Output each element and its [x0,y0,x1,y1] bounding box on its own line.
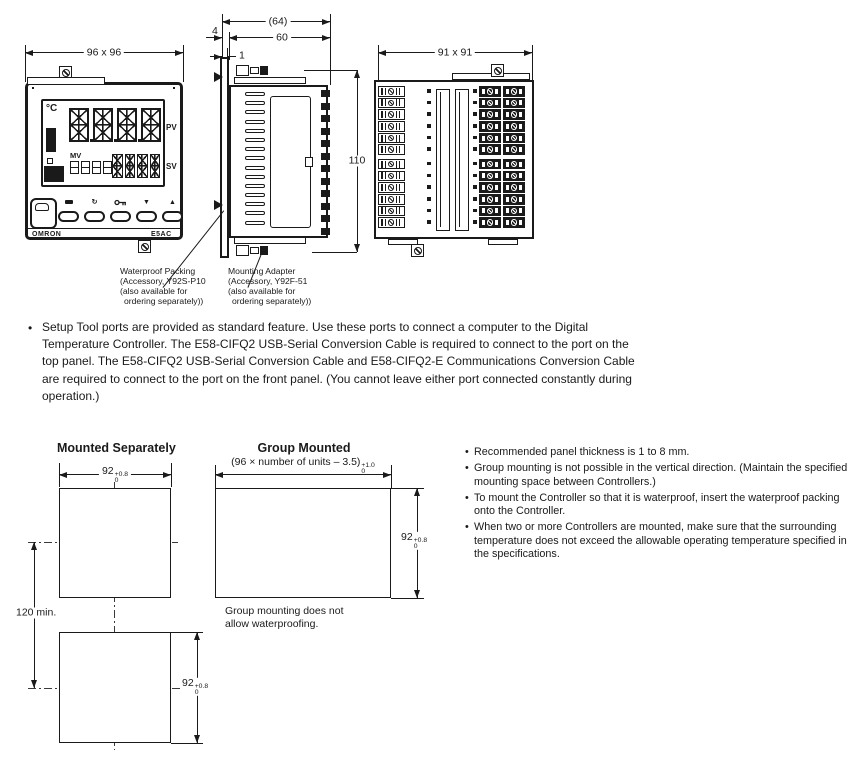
tolerance-lower: 0 [115,478,128,484]
vent-slot-column [245,92,265,230]
terminal-cell [503,86,525,97]
arrowhead [194,735,200,743]
terminal-tooth [321,228,330,235]
terminal-cell [479,194,501,205]
body-depth-dimension: 60 [273,32,291,43]
terminal-cell [378,98,405,109]
callout-line: (also available for [120,286,206,296]
temperature-unit-indicator: °C [46,103,57,114]
terminal-cell [503,182,525,193]
vent-slot [245,221,265,225]
terminal-cell [479,133,501,144]
mounted-separately-title: Mounted Separately [57,441,173,455]
clamp-screw-head [236,245,249,256]
group-cutout-height-dimension: 92+0.80 [399,532,429,550]
terminal-cell [503,133,525,144]
vent-slot [245,92,265,96]
cutout-square-lower [59,632,171,743]
bezel-divider-line [28,228,180,229]
terminal-cell [378,182,405,193]
terminal-dot-column [473,89,477,232]
status-indicator-block [46,128,56,152]
front-key-button [162,211,183,222]
terminal-cell [378,159,405,170]
indicator-block [44,166,64,182]
waterproof-packing-section [214,200,223,210]
mv-digit [103,161,112,174]
terminal-cell [378,171,405,182]
arrowhead [414,590,420,598]
callout-line: (also available for [228,286,311,296]
rear-size-dimension: 91 x 91 [435,47,475,58]
dimension-line [215,474,391,475]
list-item: • Recommended panel thickness is 1 to 8 … [465,446,849,459]
sv-label: SV [165,162,178,171]
extension-line [183,45,184,82]
sv-digit-display [112,154,162,178]
terminal-cell [503,121,525,132]
terminal-cell [503,109,525,120]
terminal-dot [473,101,477,105]
mounting-pitch-dimension: 120 min. [14,608,58,619]
extension-line [330,14,331,85]
terminal-cell [503,159,525,170]
terminal-dot [473,162,477,166]
vent-slot [245,156,265,160]
dimension-value: 92 [401,531,413,543]
terminal-cell [378,206,405,217]
mv-digit [70,161,79,174]
terminal-dot [473,89,477,93]
front-key-button [136,211,157,222]
terminal-cell [378,109,405,120]
sv-digit [150,154,161,178]
terminal-block-column-right [479,86,501,229]
sv-digit [125,154,136,178]
bullet-marker: • [28,321,32,335]
arrowhead [31,680,37,688]
callout-line: (Accessory, Y92F-51 [228,276,311,286]
pv-digit [141,108,161,142]
arrowhead [215,472,223,478]
group-mounted-title: Group Mounted [245,441,363,455]
terminal-cell [503,171,525,182]
terminal-cell [378,217,405,228]
top-mounting-clamp [234,77,306,84]
terminal-cell [378,144,405,155]
arrowhead [524,50,532,56]
formula-text: (96 × number of units – 3.5) [231,456,360,468]
terminal-cell [503,144,525,155]
terminal-dot [427,147,431,151]
terminal-dot [427,112,431,116]
arrowhead [383,472,391,478]
terminal-dot [427,162,431,166]
terminal-dot [473,124,477,128]
arrowhead [194,632,200,640]
terminal-dot-column [427,89,431,232]
terminal-tooth [321,178,330,185]
datasheet-dimensions-page: 96 x 96 °C PV MV SV ↻▼▲ OMRON E5AC (6 [0,0,854,772]
mounting-screw-icon [411,244,424,257]
brand-logo: OMRON [32,231,61,238]
terminal-tooth [321,153,330,160]
extension-line [171,463,172,487]
mode-icon: ↻ [84,198,105,207]
terminal-dot [473,209,477,213]
vent-slot [245,101,265,105]
arrowhead [378,50,386,56]
front-bezel-profile [220,57,229,258]
vent-slot [245,166,265,170]
terminal-tooth [321,190,330,197]
pv-digit [69,108,89,142]
list-item: • When two or more Controllers are mount… [465,521,849,561]
extension-line [391,465,392,488]
callout-line: ordering separately)) [228,296,311,306]
pv-label: PV [165,123,178,132]
terminal-dot [427,89,431,93]
cutout-width-dimension: 92+0.80 [99,465,131,483]
pv-digit [93,108,113,142]
vent-slot [245,175,265,179]
dimension-value: 92 [182,677,194,689]
slot-inner-line [459,92,460,227]
note-text: Group mounting is not possible in the ve… [474,462,849,489]
terminal-cell [479,182,501,193]
shift-key-icon [110,198,131,210]
terminal-cell [479,121,501,132]
vent-slot [245,129,265,133]
arrowhead [175,50,183,56]
note-line: allow waterproofing. [225,618,344,631]
terminal-cell [479,171,501,182]
decimal-point-icon [90,139,93,142]
terminal-tooth [321,203,330,210]
indicator-square [47,158,53,164]
bullet-marker: • [465,462,474,489]
rear-view-drawing: 91 x 91 [372,40,542,265]
terminal-tooth [321,215,330,222]
terminal-cell [378,86,405,97]
terminal-tooth [321,140,330,147]
terminal-cell [378,194,405,205]
terminal-cell [479,217,501,228]
terminal-dot [427,174,431,178]
mounting-screw-icon [491,64,504,77]
arrowhead [354,244,360,252]
connector-slot [436,89,450,231]
vent-slot [245,147,265,151]
panel-cutout-section: Mounted Separately Group Mounted (96 × n… [0,435,854,772]
callout-line: (Accessory, Y92S-P10 [120,276,206,286]
terminal-dot [427,101,431,105]
model-label: E5AC [151,231,172,238]
panel-clearance-dimension: 1 [237,51,247,62]
terminal-cell [503,206,525,217]
decimal-point-icon [114,139,117,142]
front-key-button [84,211,105,222]
arrowhead [322,19,330,25]
terminal-block-column-right [503,86,525,229]
terminal-dot [427,136,431,140]
terminal-comb [321,90,330,240]
arrowhead [31,542,37,550]
setup-tool-note: Setup Tool ports are provided as standar… [42,319,642,405]
clamp-nut [260,66,268,75]
note-line: Group mounting does not [225,605,344,618]
terminal-cell [503,98,525,109]
mv-digit-display [70,161,112,174]
front-key-button [110,211,131,222]
vent-slot [245,138,265,142]
arrowhead [322,35,330,41]
cutout-height-dimension: 92+0.80 [180,678,210,696]
group-width-formula: (96 × number of units – 3.5)+1.00 [211,456,395,475]
arrowhead [25,50,33,56]
callout-line: ordering separately)) [120,296,206,306]
pv-digit-display [69,108,164,142]
terminal-dot [427,220,431,224]
total-depth-dimension: (64) [266,16,291,27]
connector-slot [455,89,469,231]
terminal-tooth [321,90,330,97]
front-setup-port-cover [30,198,57,229]
front-key-row: ↻▼▲ [58,198,188,226]
bullet-marker: • [465,492,474,519]
terminal-dot [473,220,477,224]
arrowhead [222,19,230,25]
terminal-cell [479,98,501,109]
level-key-icon [58,198,79,207]
bezel-dot [32,87,34,89]
front-key-button [58,211,79,222]
terminal-cell [479,206,501,217]
vent-slot [245,211,265,215]
terminal-cell [503,217,525,228]
slot-inner-line [440,92,441,227]
tolerance-lower: 0 [414,544,427,550]
waterproof-packing-section [214,72,223,82]
terminal-dot [473,185,477,189]
terminal-tooth [321,128,330,135]
mounting-notes-list: • Recommended panel thickness is 1 to 8 … [465,446,849,561]
terminal-dot [473,174,477,178]
extension-line [312,252,357,253]
terminal-dot [427,185,431,189]
terminal-block-column-left [378,86,405,229]
extension-line [304,70,357,71]
mv-digit [81,161,90,174]
up-icon: ▲ [162,198,183,207]
height-dimension: 110 [346,156,369,167]
callout-line: Waterproof Packing [120,266,206,276]
terminal-cell [503,194,525,205]
list-item: • Group mounting is not possible in the … [465,462,849,489]
terminal-cell [479,109,501,120]
arrowhead [229,35,237,41]
vent-slot [245,202,265,206]
vent-slot [245,120,265,124]
bullet-marker: • [465,446,474,459]
terminal-dot [473,136,477,140]
note-text: To mount the Controller so that it is wa… [474,492,849,519]
cover-latch [305,157,313,167]
terminal-dot [427,197,431,201]
decimal-point-icon [138,139,141,142]
vent-slot [245,193,265,197]
mounting-adapter-callout: Mounting Adapter (Accessory, Y92F-51 (al… [228,266,311,306]
note-text: Recommended panel thickness is 1 to 8 mm… [474,446,689,459]
terminal-cell [479,144,501,155]
vent-slot [245,110,265,114]
top-port-cover [27,77,105,84]
pv-digit [117,108,137,142]
callout-line: Mounting Adapter [228,266,311,276]
vent-slot [245,184,265,188]
group-cutout-rectangle [215,488,391,598]
bottom-mounting-clamp [234,237,306,244]
terminal-dot [473,112,477,116]
terminal-tooth [321,103,330,110]
note-text: When two or more Controllers are mounted… [474,521,849,561]
arrowhead [354,70,360,78]
arrowhead [59,472,67,478]
cutout-square-upper [59,488,171,598]
extension-line [391,598,424,599]
clamp-screw-head [236,65,249,76]
list-item: • To mount the Controller so that it is … [465,492,849,519]
terminal-cell [378,133,405,144]
bullet-marker: • [465,521,474,561]
down-icon: ▼ [136,198,157,207]
extension-line [171,743,203,744]
rear-bottom-tab [488,239,518,245]
extension-line [532,45,533,80]
clamp-screw-shaft [250,67,259,74]
mv-label: MV [70,151,81,160]
terminal-dot [427,209,431,213]
front-size-dimension: 96 x 96 [84,47,124,58]
side-view-drawing: (64) 60 4 1 110 [200,8,370,268]
terminal-dot [427,124,431,128]
dimension-value: 92 [102,464,114,476]
sv-digit [137,154,148,178]
clamp-screw-shaft [250,247,259,254]
mounting-screw-icon [138,240,151,253]
terminal-tooth [321,165,330,172]
port-cover-latch [35,203,49,211]
front-view-drawing: 96 x 96 °C PV MV SV ↻▼▲ OMRON E5AC [25,40,200,270]
bezel-depth-dimension: 4 [212,25,218,37]
terminal-cell [479,159,501,170]
bezel-dot [173,87,175,89]
terminal-cell [479,86,501,97]
terminal-dot [473,197,477,201]
arrowhead [163,472,171,478]
terminal-cell [378,121,405,132]
terminal-dot [473,147,477,151]
group-mounting-note: Group mounting does not allow waterproof… [225,605,344,630]
terminal-tooth [321,115,330,122]
arrowhead [414,488,420,496]
waterproof-packing-callout: Waterproof Packing (Accessory, Y92S-P10 … [120,266,206,306]
tolerance-lower: 0 [195,690,208,696]
sv-digit [112,154,123,178]
mv-digit [92,161,101,174]
